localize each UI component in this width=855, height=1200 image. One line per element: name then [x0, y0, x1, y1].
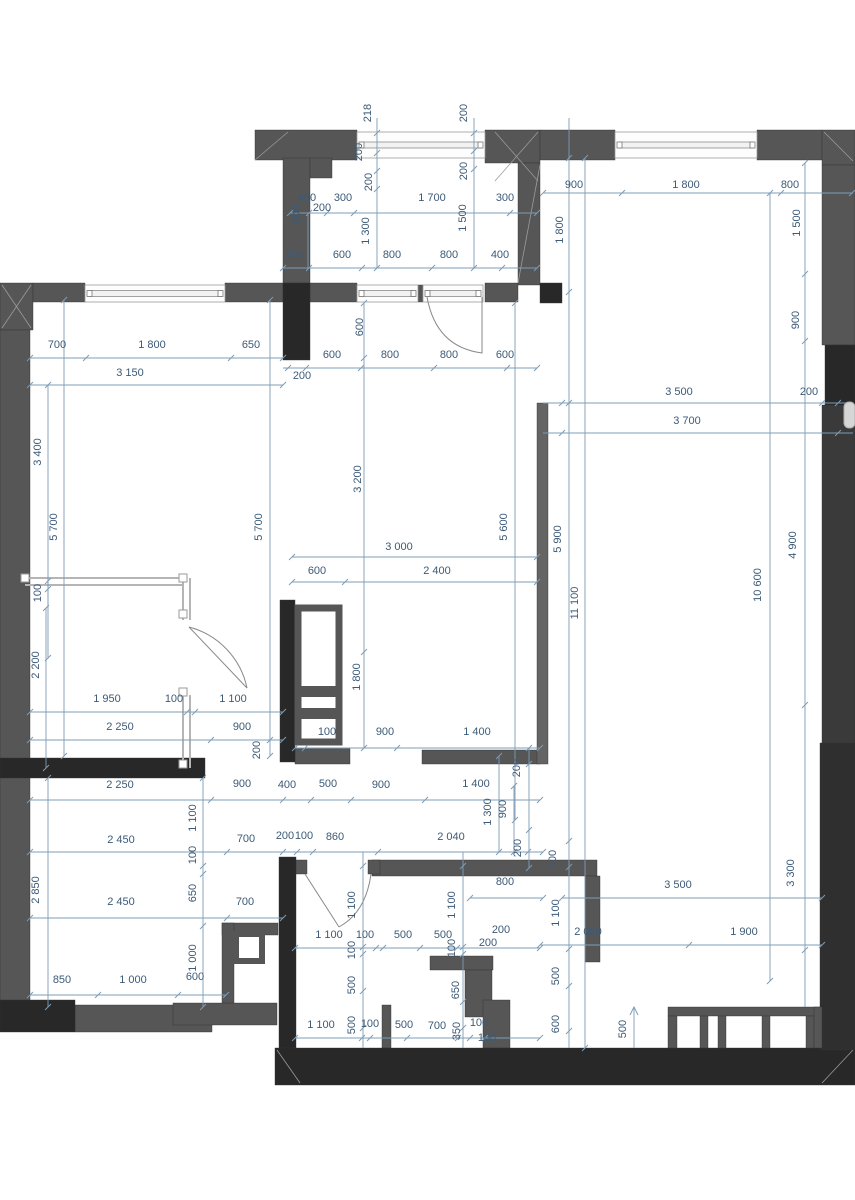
dim-label: 1 950: [93, 693, 121, 705]
wall-segment: [430, 956, 493, 970]
dim-label: 1 500: [291, 205, 303, 233]
window-frame-end: [411, 291, 416, 297]
dim-label: 200: [800, 386, 818, 398]
dim-label: 300: [496, 192, 514, 204]
wall-segment: [822, 165, 855, 345]
dim-label: 600: [550, 1015, 562, 1033]
dim-label: 1 400: [463, 726, 491, 738]
dim-label: 200: [479, 937, 497, 949]
dim-label: 1 100: [550, 899, 562, 927]
wall-segment: [418, 285, 423, 302]
wall-segment: [310, 158, 332, 178]
dim-label: 650: [450, 981, 462, 999]
wall-segment: [700, 1016, 708, 1048]
wall-segment: [537, 403, 548, 764]
dim-label: 600: [323, 349, 341, 361]
dim-label: 600: [354, 318, 366, 336]
door-leaf: [305, 874, 339, 927]
window-frame-end: [617, 142, 622, 148]
dim-label: 1 100: [315, 929, 343, 941]
dim-label: 200: [251, 741, 263, 759]
dim-label: 400: [491, 249, 509, 261]
wall-segment: [822, 405, 855, 745]
dim-label: 800: [440, 249, 458, 261]
dim-label: 2 200: [30, 651, 42, 679]
wall-segment: [762, 1016, 770, 1048]
dim-label: 1 400: [462, 778, 490, 790]
dim-label: 100: [346, 941, 358, 959]
dim-label: 800: [383, 249, 401, 261]
dim-label: 100: [165, 693, 183, 705]
scrollbar-thumb[interactable]: [844, 402, 855, 428]
closet-shelf: [300, 708, 337, 719]
wall-segment: [540, 130, 615, 160]
dim-label: 1 100: [346, 891, 358, 919]
dim-label: 5 700: [48, 513, 60, 541]
window-frame-end: [425, 291, 430, 297]
wall-segment: [368, 860, 380, 874]
dim-label: 500: [346, 976, 358, 994]
dim-label: 218: [362, 104, 374, 122]
dim-label: 100: [356, 929, 374, 941]
dim-label: 1 800: [672, 179, 700, 191]
dim-label: 860: [326, 831, 344, 843]
floor-plan-page: 2182002002002001 5001 3001 5001 80040030…: [0, 0, 855, 1200]
dim-label: 1 300: [360, 217, 372, 245]
dim-label: 5 900: [552, 525, 564, 553]
wall-segment: [280, 600, 295, 762]
dim-label: 800: [440, 349, 458, 361]
dim-label: 11 100: [569, 587, 581, 620]
dim-label: 4 900: [787, 531, 799, 559]
dim-label: 200: [363, 173, 375, 191]
dim-label: 10 600: [752, 568, 764, 602]
balcony-door-arc: [427, 297, 482, 353]
dim-label: 1 800: [554, 216, 566, 244]
wall-segment: [310, 283, 357, 302]
wall-hatch-layer: [2, 132, 853, 1083]
dim-label: 700: [428, 1020, 446, 1032]
dim-label: 1 100: [446, 891, 458, 919]
dim-label: 200: [492, 924, 510, 936]
dim-label: 200: [458, 162, 470, 180]
wall-segment: [485, 130, 540, 163]
dim-label: 2 850: [30, 876, 42, 904]
wall-segment: [668, 1007, 822, 1016]
dim-label: 1 800: [351, 663, 363, 691]
dim-label: 850: [53, 974, 71, 986]
dim-label: 3 500: [665, 386, 693, 398]
window-frame-end: [476, 291, 481, 297]
dim-label: 800: [381, 349, 399, 361]
dim-label: 2 400: [423, 565, 451, 577]
dim-label: 100: [32, 584, 44, 602]
dim-label: 2 040: [437, 831, 465, 843]
dim-label: 500: [617, 1020, 629, 1038]
dim-label: 2 250: [106, 721, 134, 733]
dim-label: 500: [550, 967, 562, 985]
dim-label: 1 100: [219, 693, 247, 705]
closet-outline: [298, 608, 339, 742]
dim-label: 100: [446, 939, 458, 957]
walls-layer: [0, 130, 855, 1085]
partition-node: [179, 610, 187, 618]
dim-label: 700: [236, 896, 254, 908]
wall-segment: [825, 345, 855, 407]
dim-label: 1 800: [138, 339, 166, 351]
dim-label: 3 300: [785, 859, 797, 887]
dim-label: 2 000: [574, 926, 602, 938]
dim-label: 200: [458, 104, 470, 122]
wall-segment: [0, 330, 30, 1005]
dim-label: 200: [313, 202, 331, 214]
dimension-labels-layer: 2182002002002001 5001 3001 5001 80040030…: [30, 104, 818, 1044]
wall-segment: [283, 283, 310, 360]
dim-label: 3 400: [32, 438, 44, 466]
wall-segment: [222, 923, 234, 1003]
wall-segment: [173, 1003, 277, 1025]
dim-label: 800: [496, 876, 514, 888]
dim-label: 1 500: [457, 204, 469, 232]
dim-label: 500: [319, 778, 337, 790]
dim-label: 900: [376, 726, 394, 738]
dim-label: 1 000: [119, 974, 147, 986]
window-frame: [361, 142, 481, 148]
dim-label: 3 700: [673, 415, 701, 427]
windows-layer: [85, 132, 757, 302]
window-frame: [89, 291, 221, 297]
wall-segment: [485, 283, 518, 302]
wall-segment: [0, 758, 205, 778]
dim-label: 100: [295, 830, 313, 842]
window-frame-end: [750, 142, 755, 148]
dim-label: 2 250: [106, 779, 134, 791]
window-frame-end: [218, 291, 223, 297]
dim-label: 1 700: [418, 192, 446, 204]
wall-segment: [225, 283, 283, 302]
wall-segment: [33, 283, 85, 302]
wall-segment: [279, 857, 296, 1048]
dim-label: 900: [497, 800, 509, 818]
dim-label: 300: [334, 192, 352, 204]
dim-label: 500: [395, 1019, 413, 1031]
dim-label: 300: [286, 249, 304, 261]
dim-label: 500: [394, 929, 412, 941]
dim-label: 1 900: [730, 926, 758, 938]
wall-segment: [757, 130, 822, 160]
window-frame: [619, 142, 753, 148]
dim-label: 200: [512, 839, 524, 857]
dim-label: 700: [237, 833, 255, 845]
wall-segment: [814, 1007, 822, 1048]
dim-label: 900: [565, 179, 583, 191]
dim-label: 650: [242, 339, 260, 351]
dim-label: 5 700: [253, 513, 265, 541]
dim-label: 600: [308, 565, 326, 577]
dim-label: 200: [353, 143, 365, 161]
partition-node: [179, 574, 187, 582]
wall-segment: [0, 1000, 75, 1032]
niche-box: [236, 934, 262, 961]
dim-label: 200: [511, 759, 523, 777]
dim-label: 100: [470, 1017, 488, 1029]
wall-segment: [668, 1016, 677, 1048]
dim-label: 3 200: [352, 465, 364, 493]
wall-segment: [275, 1048, 855, 1085]
dim-label: 600: [333, 249, 351, 261]
dim-label: 900: [372, 779, 390, 791]
dim-label: 400: [278, 779, 296, 791]
door-leaf: [189, 627, 247, 688]
dim-label: 2 450: [107, 834, 135, 846]
window-frame-end: [359, 291, 364, 297]
wall-segment: [372, 860, 597, 876]
wall-segment: [806, 1016, 814, 1048]
dim-label: 500: [346, 1016, 358, 1034]
dim-label: 350: [451, 1022, 463, 1040]
dim-label: 3 500: [664, 879, 692, 891]
wall-segment: [820, 743, 855, 1050]
dim-label: 1 000: [187, 944, 199, 972]
dim-label: 1 500: [791, 209, 803, 237]
partition-node: [21, 574, 29, 582]
dim-label: 900: [233, 778, 251, 790]
wall-segment: [255, 130, 357, 160]
dim-label: 700: [48, 339, 66, 351]
window-frame: [427, 291, 479, 297]
window-frame: [361, 291, 414, 297]
wall-segment: [585, 876, 600, 962]
dim-label: 2 450: [107, 896, 135, 908]
window-frame-end: [478, 142, 483, 148]
partition-node: [179, 760, 187, 768]
dim-label: 600: [496, 349, 514, 361]
dim-label: 3 000: [385, 541, 413, 553]
dim-label: 900: [790, 311, 802, 329]
dim-label: 100: [318, 726, 336, 738]
wall-segment: [382, 1005, 391, 1048]
dim-label: 300: [547, 850, 559, 868]
wall-segment: [540, 283, 562, 303]
dim-label: 100: [478, 1032, 496, 1044]
dim-label: 100: [361, 1018, 379, 1030]
dim-label: 100: [187, 846, 199, 864]
window-frame-end: [87, 291, 92, 297]
dim-label: 200: [276, 830, 294, 842]
dim-label: 1 300: [482, 798, 494, 826]
dim-label: 1 100: [307, 1019, 335, 1031]
dim-label: 3 150: [116, 367, 144, 379]
dim-label: 800: [781, 179, 799, 191]
dim-label: 600: [186, 971, 204, 983]
dim-label: 200: [293, 370, 311, 382]
dim-label: 5 600: [498, 513, 510, 541]
wall-segment: [718, 1016, 726, 1048]
dim-label: 1 100: [187, 804, 199, 832]
wall-segment: [295, 860, 307, 874]
dim-label: 650: [187, 884, 199, 902]
closet-shelf: [300, 686, 337, 697]
dim-label: 900: [233, 721, 251, 733]
floor-plan-canvas: 2182002002002001 5001 3001 5001 80040030…: [0, 0, 855, 1200]
